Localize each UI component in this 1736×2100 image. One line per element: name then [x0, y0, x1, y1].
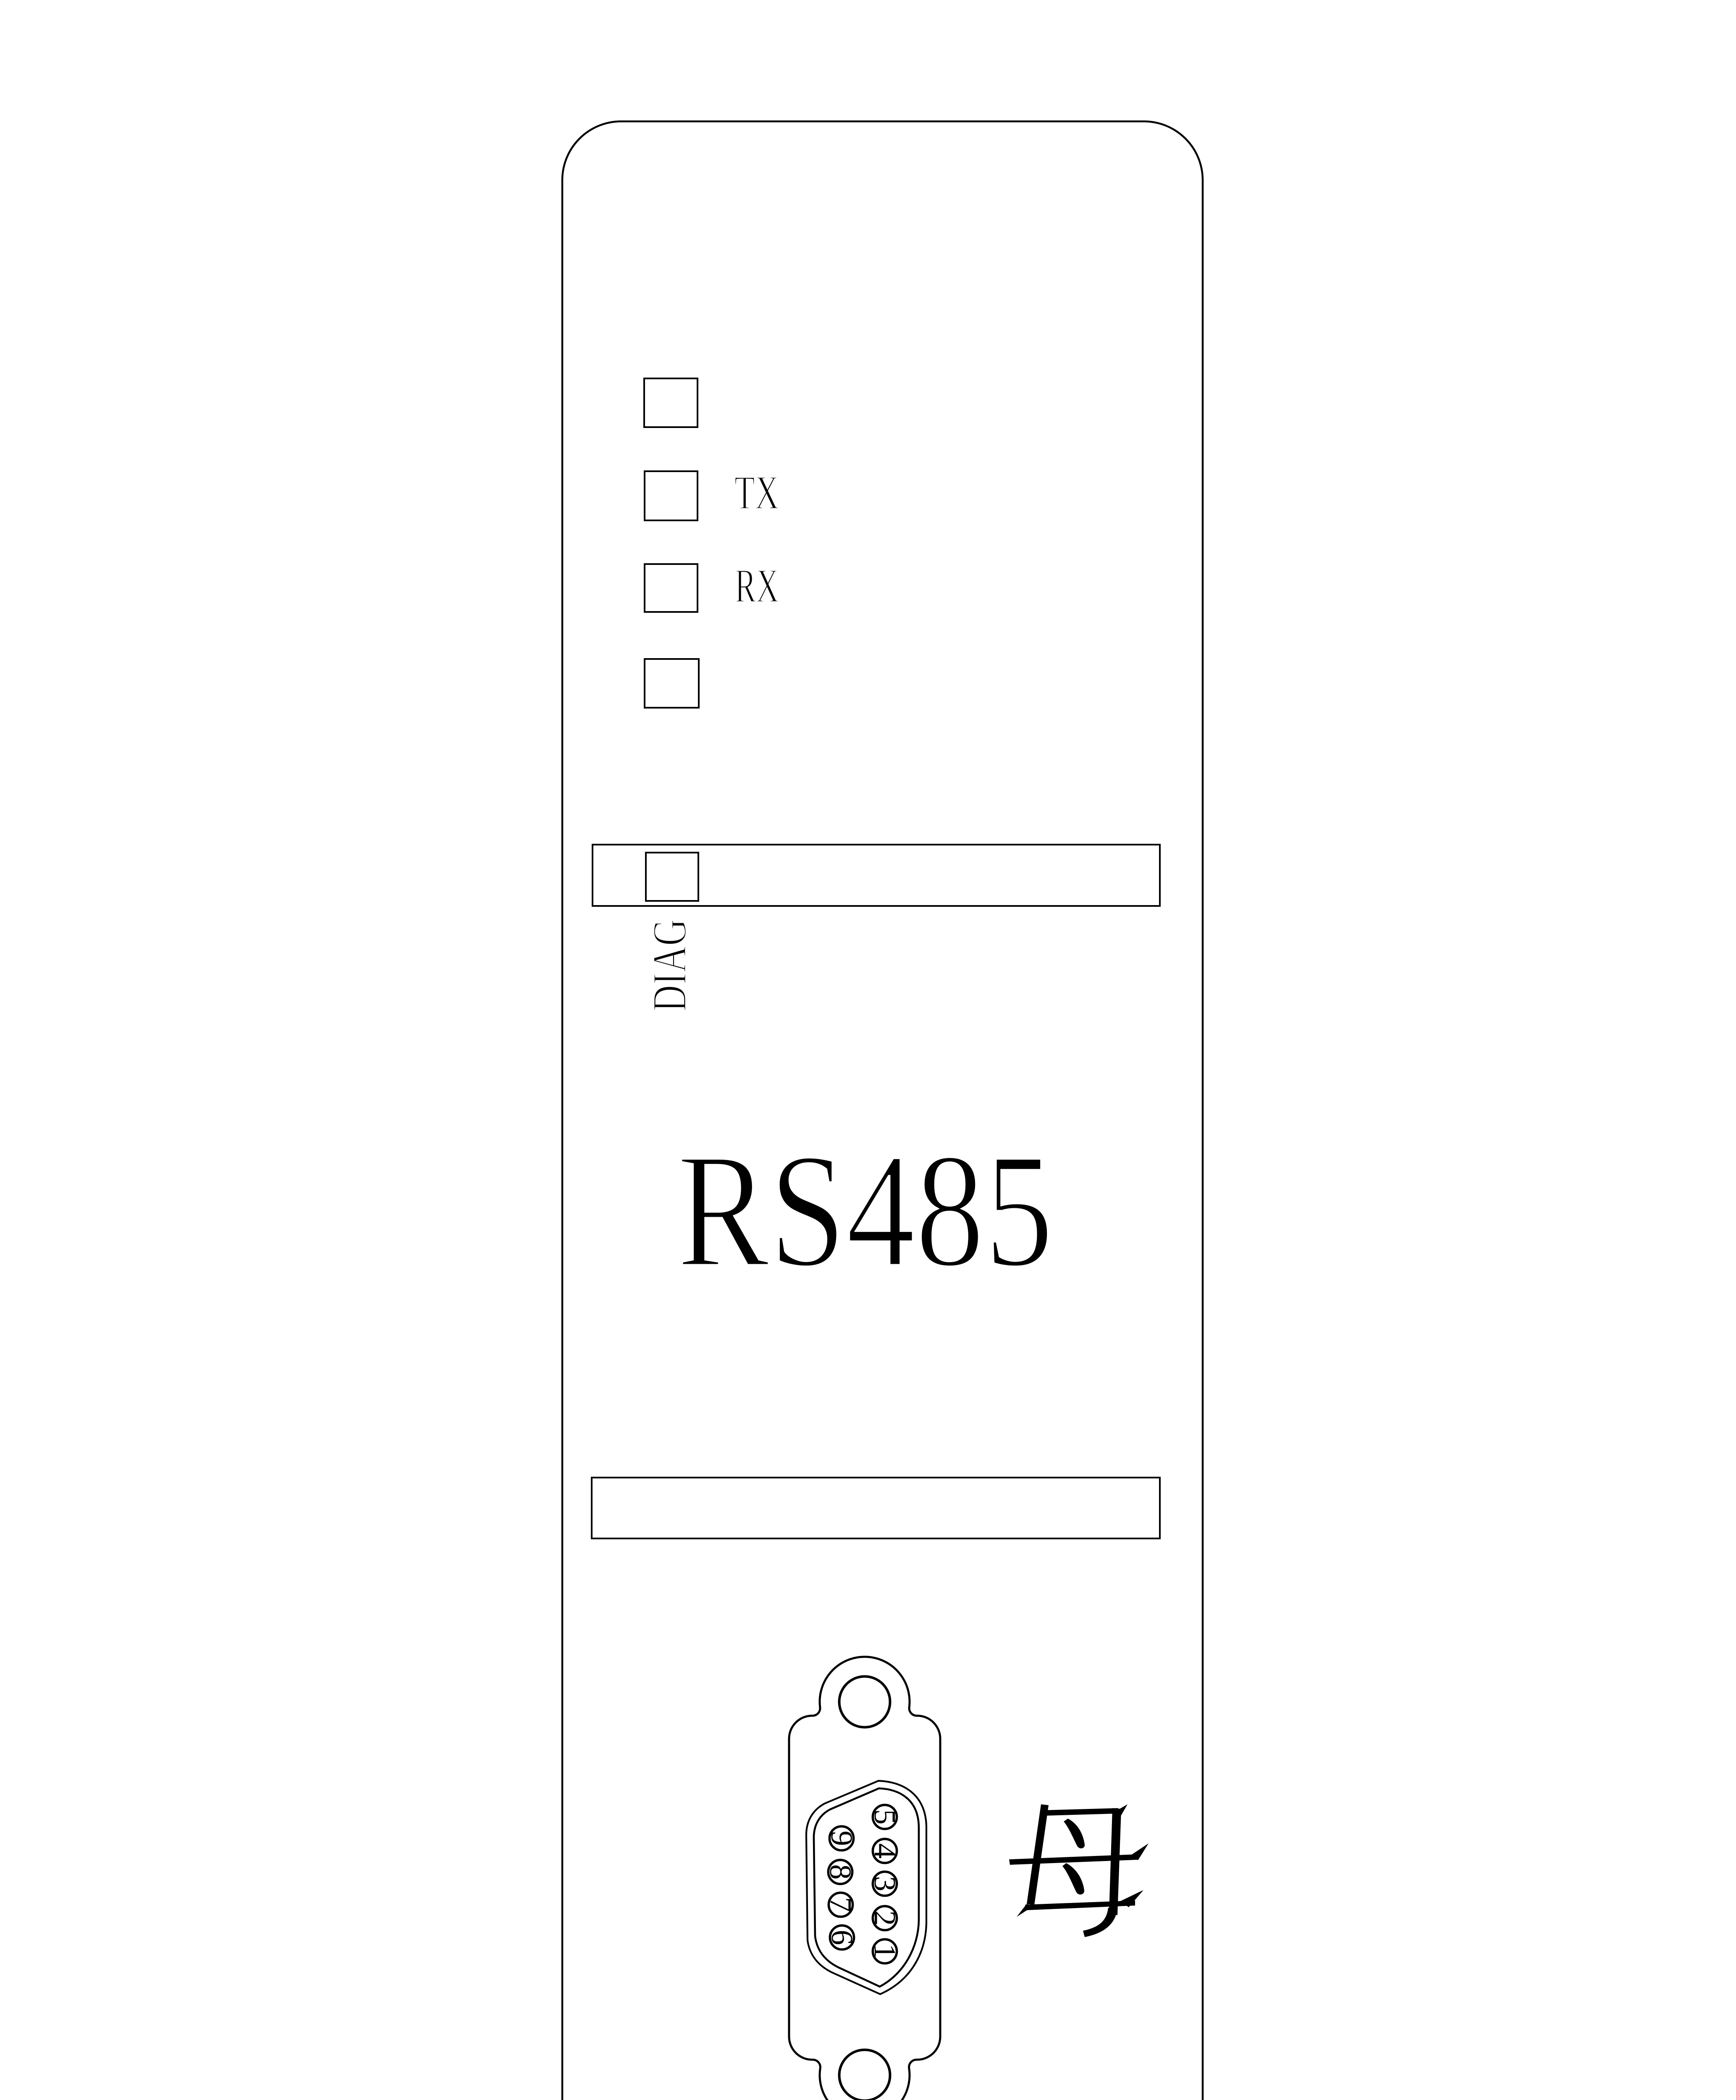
svg-text:DIAG: DIAG — [643, 919, 696, 1012]
svg-text:1: 1 — [868, 1944, 902, 1959]
svg-text:RX: RX — [735, 559, 779, 612]
svg-text:3: 3 — [868, 1876, 902, 1892]
svg-text:9: 9 — [825, 1831, 859, 1846]
svg-text:7: 7 — [824, 1897, 858, 1913]
svg-text:2: 2 — [868, 1911, 902, 1926]
svg-text:4: 4 — [868, 1843, 902, 1859]
svg-text:8: 8 — [823, 1864, 858, 1880]
svg-text:TX: TX — [734, 466, 779, 519]
svg-text:RS485: RS485 — [677, 1120, 1054, 1301]
svg-text:6: 6 — [825, 1930, 859, 1945]
svg-text:5: 5 — [868, 1809, 902, 1825]
